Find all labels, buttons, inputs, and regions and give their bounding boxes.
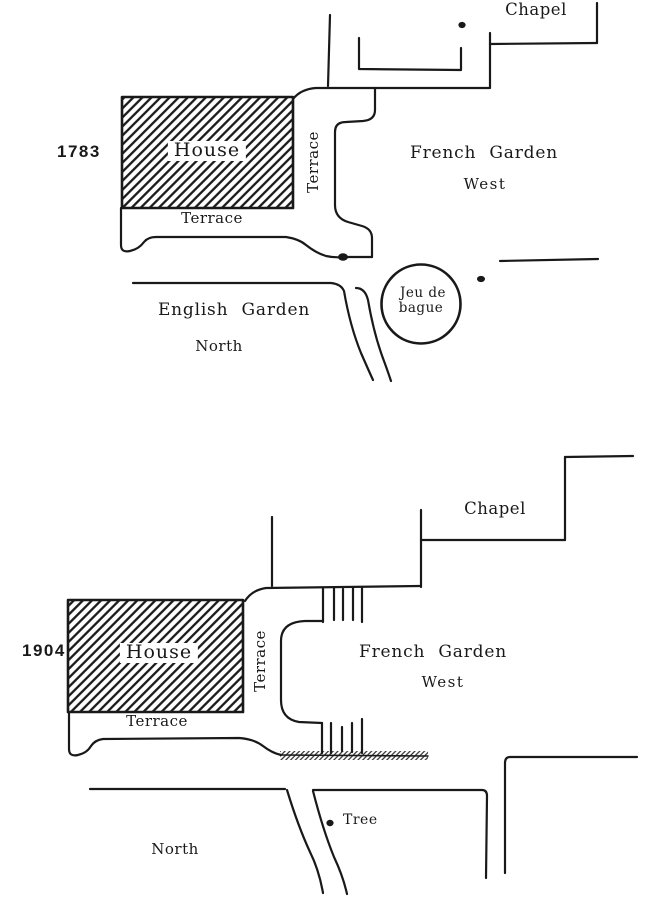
path-east-edge-1783: [356, 288, 391, 381]
north-label-1904: North: [151, 842, 199, 858]
garden-dot-1783: [477, 276, 485, 282]
north-label-1783: North: [195, 339, 243, 355]
terrace-south-boundary-1783: [121, 208, 372, 257]
year-label-1904: 1904: [22, 642, 66, 660]
terrace-side-label-1904: Terrace: [253, 630, 269, 692]
terrace-front-label-1783: Terrace: [181, 211, 243, 227]
french-garden-label-1904: French Garden: [359, 644, 507, 662]
chapel-label-1783: Chapel: [505, 1, 567, 18]
west-label-1904: West: [422, 675, 465, 691]
plan-1783-lines: [121, 3, 598, 381]
terrace-east-boundary-1783: [335, 88, 375, 257]
road-and-path-west-edge-1783: [133, 283, 373, 380]
court-outline-1783: [359, 38, 461, 70]
house-label-1904: House: [120, 643, 198, 663]
jeu-de-bague-label-line1: Jeu de: [400, 286, 446, 300]
garden-north-boundary-1783: [293, 88, 489, 99]
year-label-1783: 1783: [57, 143, 101, 161]
terrace-front-label-1904: Terrace: [126, 714, 188, 730]
plan-1904-dots: [326, 820, 333, 826]
boundary-segment-east-1783: [500, 259, 598, 261]
jeu-de-bague-label-line2: bague: [399, 301, 444, 315]
hedge-ticks-1904: [280, 751, 428, 760]
tree-label-1904: Tree: [343, 813, 378, 828]
plan-1904-lines: [68, 456, 637, 894]
terrace-dot-1783: [338, 253, 348, 261]
french-garden-label-1783: French Garden: [410, 145, 558, 163]
chapel-wall-south-1783: [490, 43, 597, 44]
wall-line-1783: [328, 15, 330, 86]
plans-linework: [0, 0, 661, 905]
west-label-1783: West: [464, 177, 507, 193]
road-far-edge-1904: [505, 757, 637, 873]
terrace-side-label-1783: Terrace: [306, 131, 322, 193]
tree-dot-1904: [326, 820, 333, 826]
garden-north-boundary-1904: [245, 586, 420, 601]
chapel-label-1904: Chapel: [464, 500, 526, 517]
house-label-1783: House: [168, 141, 246, 161]
tree-dot-chapel-1783: [458, 22, 465, 28]
path-east-edge-1904: [313, 791, 347, 894]
garden-plans-figure: 1783 Chapel House Terrace Terrace French…: [0, 0, 661, 905]
road-north-edge-east-1904: [313, 790, 487, 878]
chapel-wall-north-1904: [565, 456, 633, 457]
english-garden-label-1783: English Garden: [158, 302, 310, 320]
terrace-east-boundary-1904: [281, 621, 323, 723]
